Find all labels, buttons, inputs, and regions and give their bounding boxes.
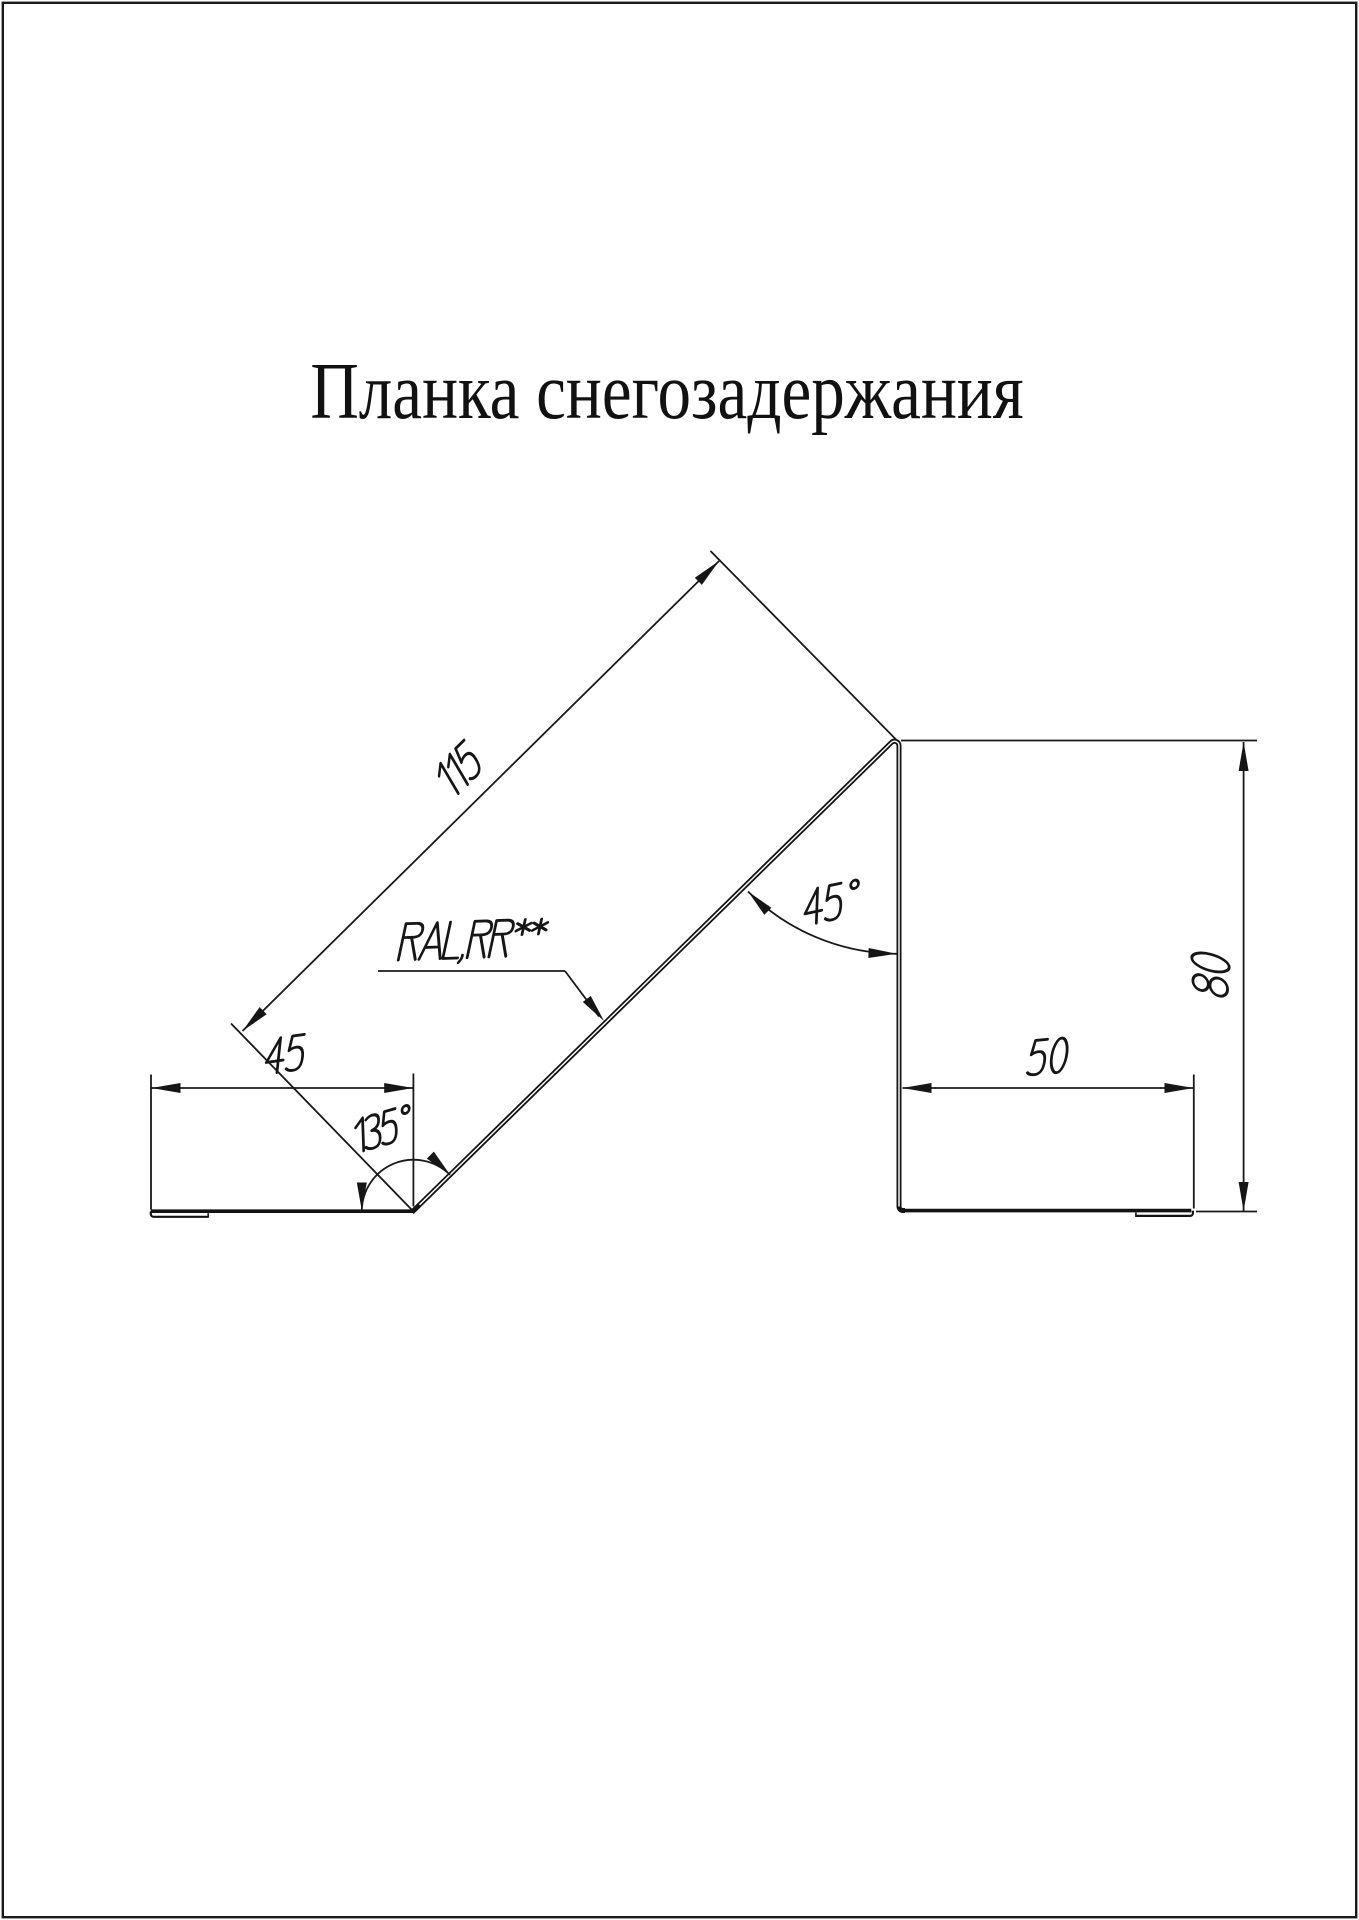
svg-text:Планка снегозадержания: Планка снегозадержания: [310, 346, 1023, 435]
